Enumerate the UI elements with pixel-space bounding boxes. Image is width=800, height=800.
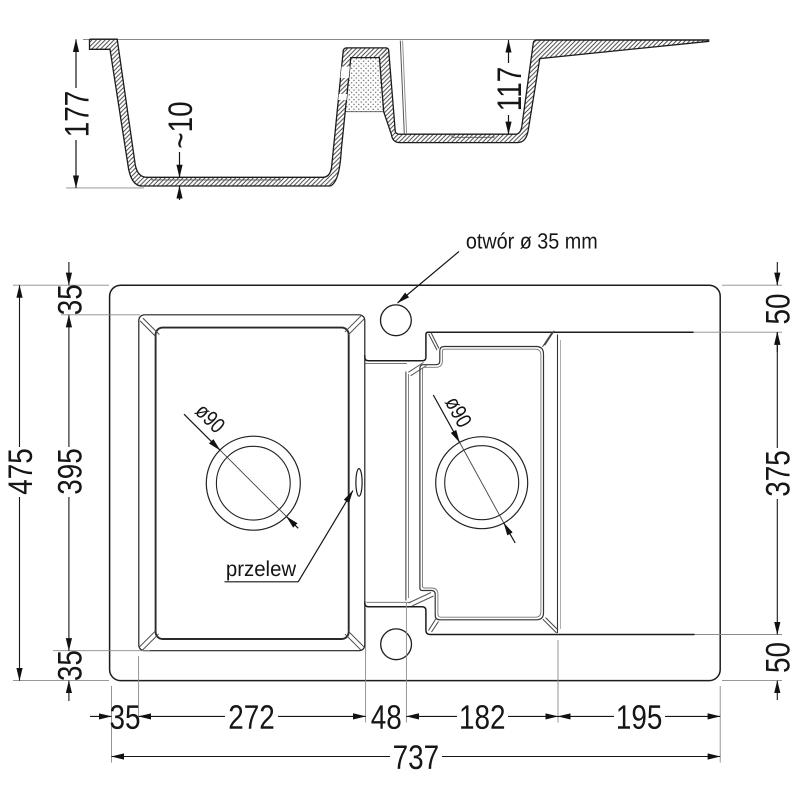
svg-text:35: 35 xyxy=(51,284,89,315)
svg-text:ø90: ø90 xyxy=(440,393,476,432)
svg-text:395: 395 xyxy=(51,448,89,495)
svg-text:117: 117 xyxy=(490,67,528,111)
svg-text:50: 50 xyxy=(759,293,797,324)
svg-text:otwór ø 35 mm: otwór ø 35 mm xyxy=(466,230,598,254)
svg-text:737: 737 xyxy=(393,738,440,776)
svg-text:35: 35 xyxy=(51,650,89,681)
svg-text:177: 177 xyxy=(58,91,96,138)
svg-text:50: 50 xyxy=(759,642,797,673)
svg-text:48: 48 xyxy=(371,698,402,736)
svg-text:195: 195 xyxy=(616,698,663,736)
svg-text:~10: ~10 xyxy=(161,101,199,148)
svg-text:475: 475 xyxy=(1,448,39,495)
svg-text:35: 35 xyxy=(109,698,140,736)
svg-text:182: 182 xyxy=(459,698,506,736)
svg-text:przelew: przelew xyxy=(226,558,297,582)
svg-text:ø90: ø90 xyxy=(190,399,229,438)
svg-text:272: 272 xyxy=(228,698,275,736)
svg-text:375: 375 xyxy=(759,450,797,497)
